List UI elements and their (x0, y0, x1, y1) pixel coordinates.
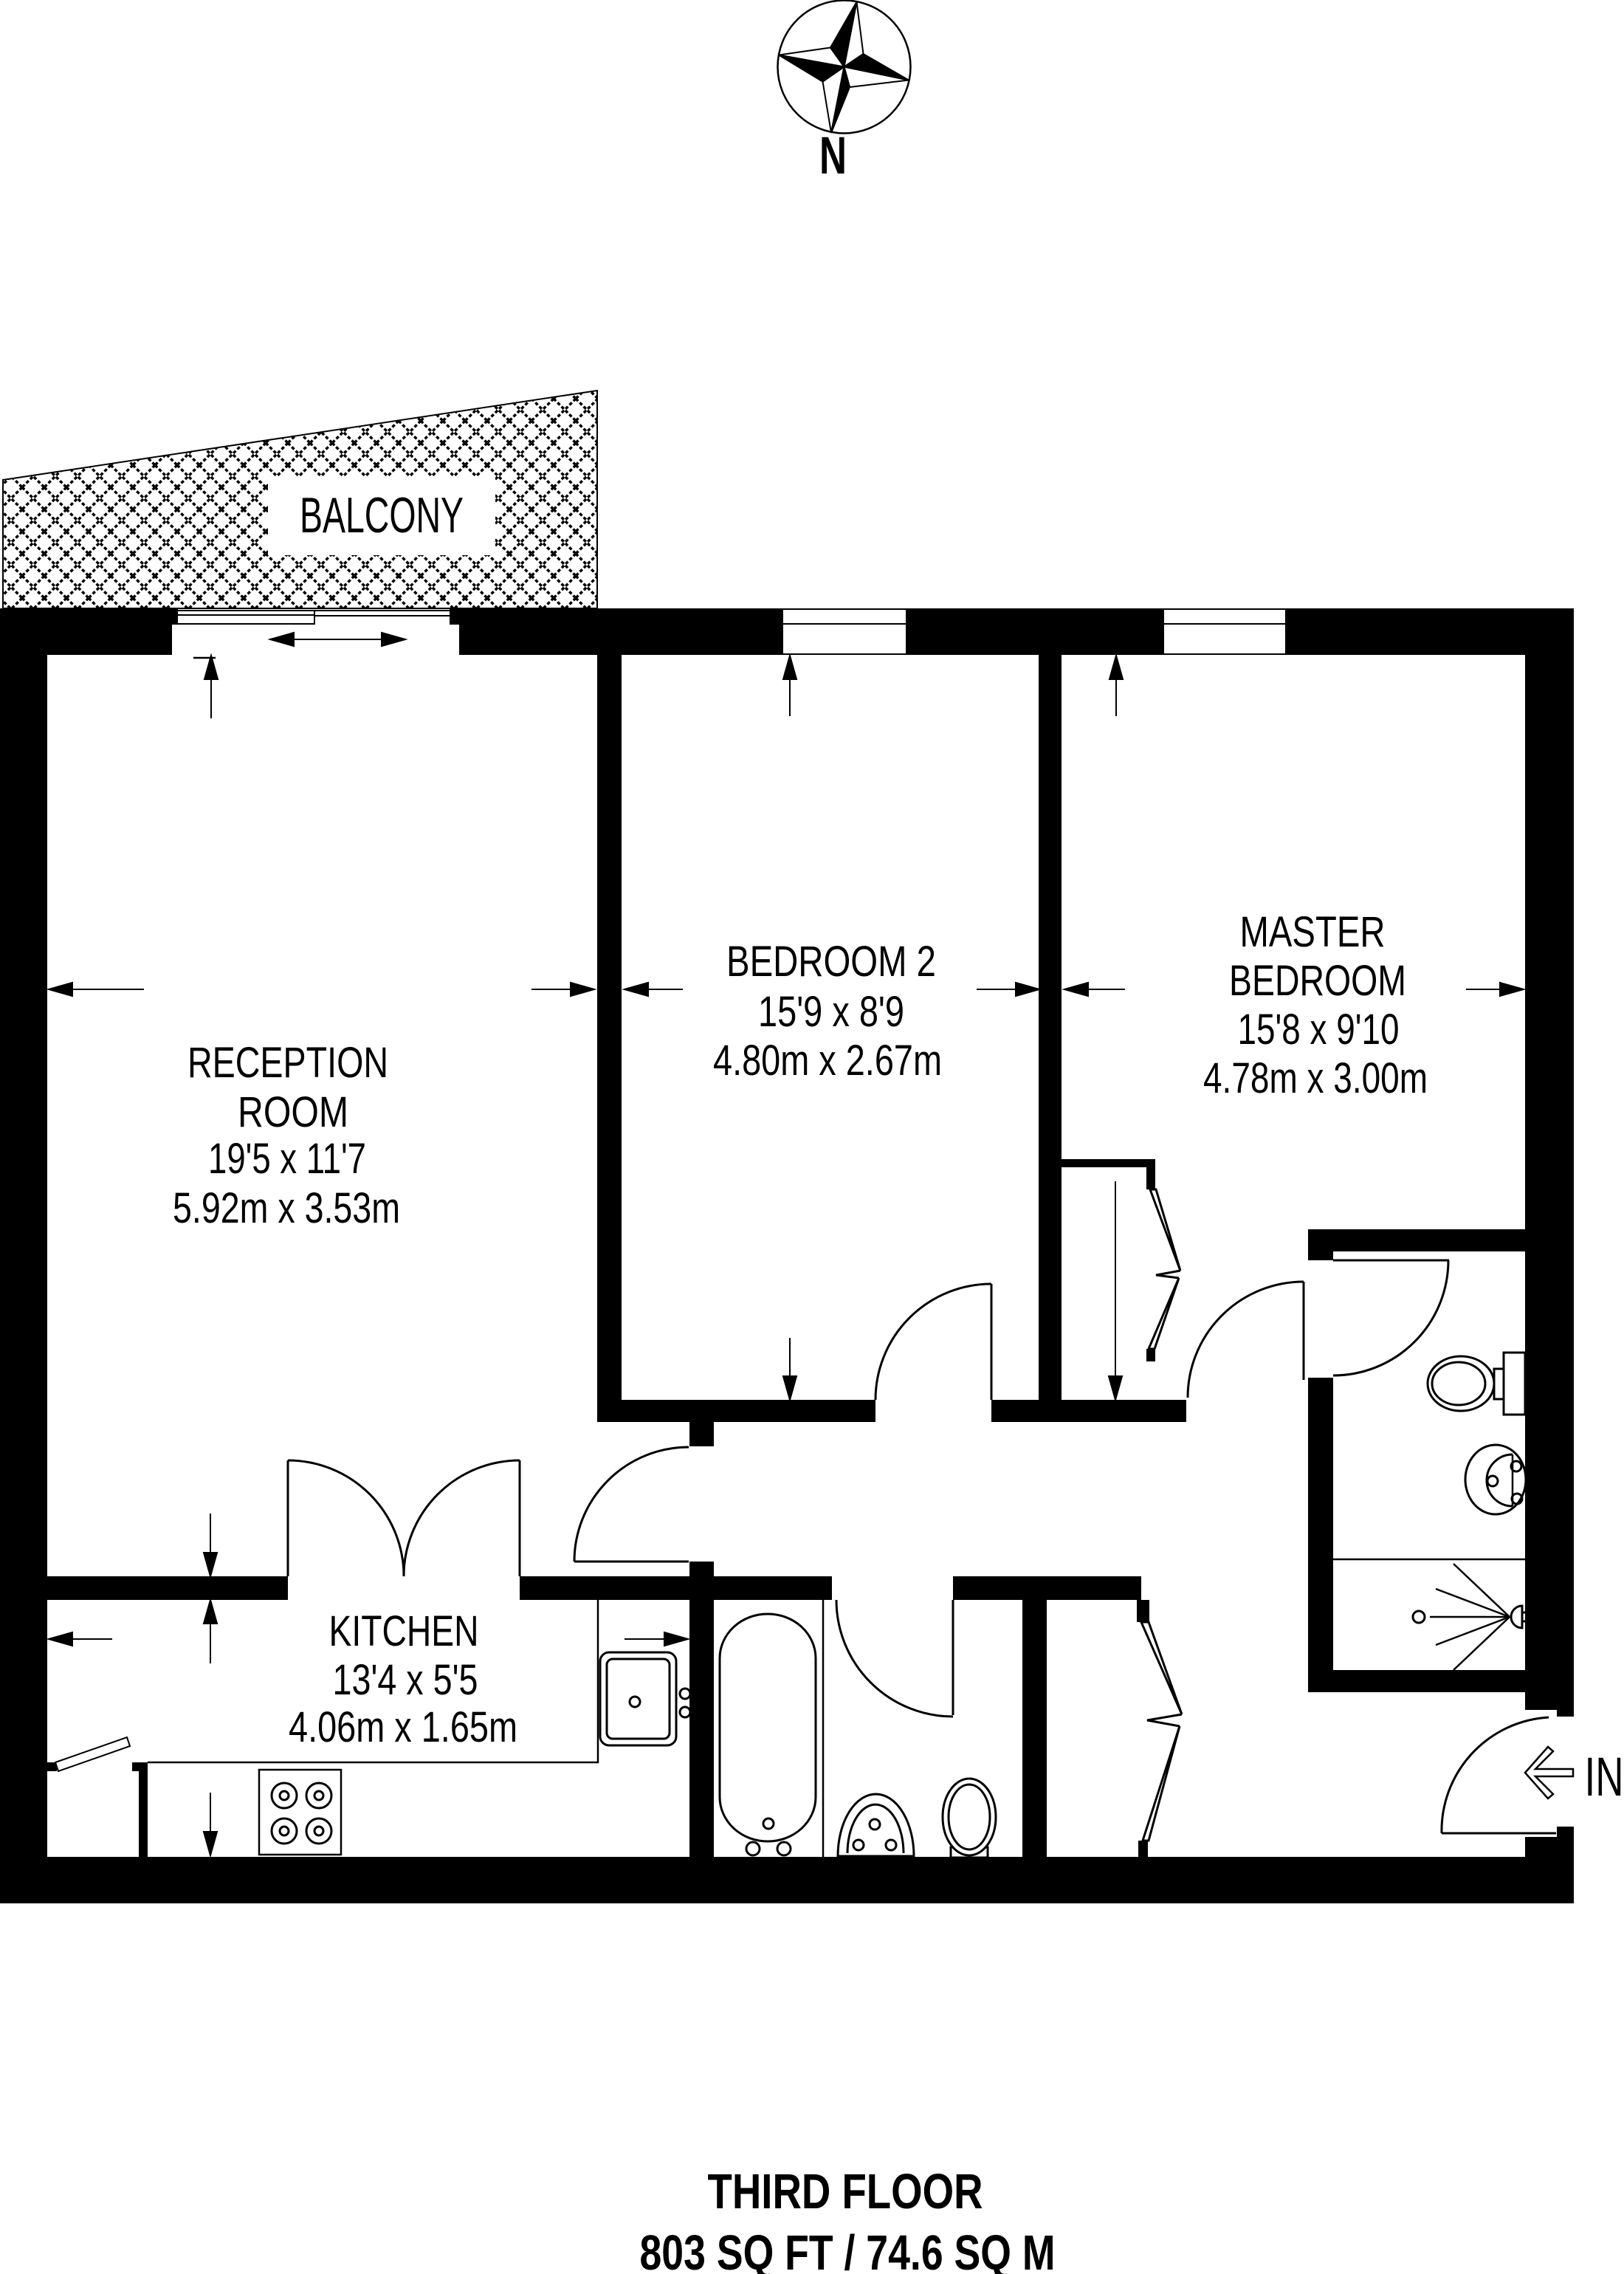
svg-text:ROOM: ROOM (238, 1088, 348, 1136)
svg-text:MASTER: MASTER (1240, 908, 1386, 956)
svg-text:N: N (819, 127, 847, 185)
svg-text:4.78m x 3.00m: 4.78m x 3.00m (1203, 1054, 1428, 1102)
svg-text:19'5 x 11'7: 19'5 x 11'7 (208, 1135, 366, 1183)
svg-text:RECEPTION: RECEPTION (187, 1039, 388, 1087)
svg-text:4.80m x 2.67m: 4.80m x 2.67m (713, 1037, 942, 1085)
svg-text:BEDROOM: BEDROOM (1229, 957, 1406, 1005)
svg-text:KITCHEN: KITCHEN (329, 1607, 479, 1655)
svg-text:15'9 x 8'9: 15'9 x 8'9 (758, 988, 904, 1036)
svg-text:BALCONY: BALCONY (300, 487, 464, 543)
svg-text:BEDROOM 2: BEDROOM 2 (726, 938, 936, 986)
svg-text:803 SQ FT / 74.6 SQ M: 803 SQ FT / 74.6 SQ M (640, 2225, 1056, 2274)
svg-text:IN: IN (1585, 1746, 1624, 1807)
svg-text:THIRD FLOOR: THIRD FLOOR (708, 2164, 983, 2219)
svg-text:4.06m x 1.65m: 4.06m x 1.65m (289, 1703, 517, 1751)
svg-text:13'4 x 5'5: 13'4 x 5'5 (333, 1656, 478, 1704)
svg-text:5.92m x 3.53m: 5.92m x 3.53m (173, 1184, 400, 1232)
svg-text:15'8 x 9'10: 15'8 x 9'10 (1238, 1006, 1400, 1054)
